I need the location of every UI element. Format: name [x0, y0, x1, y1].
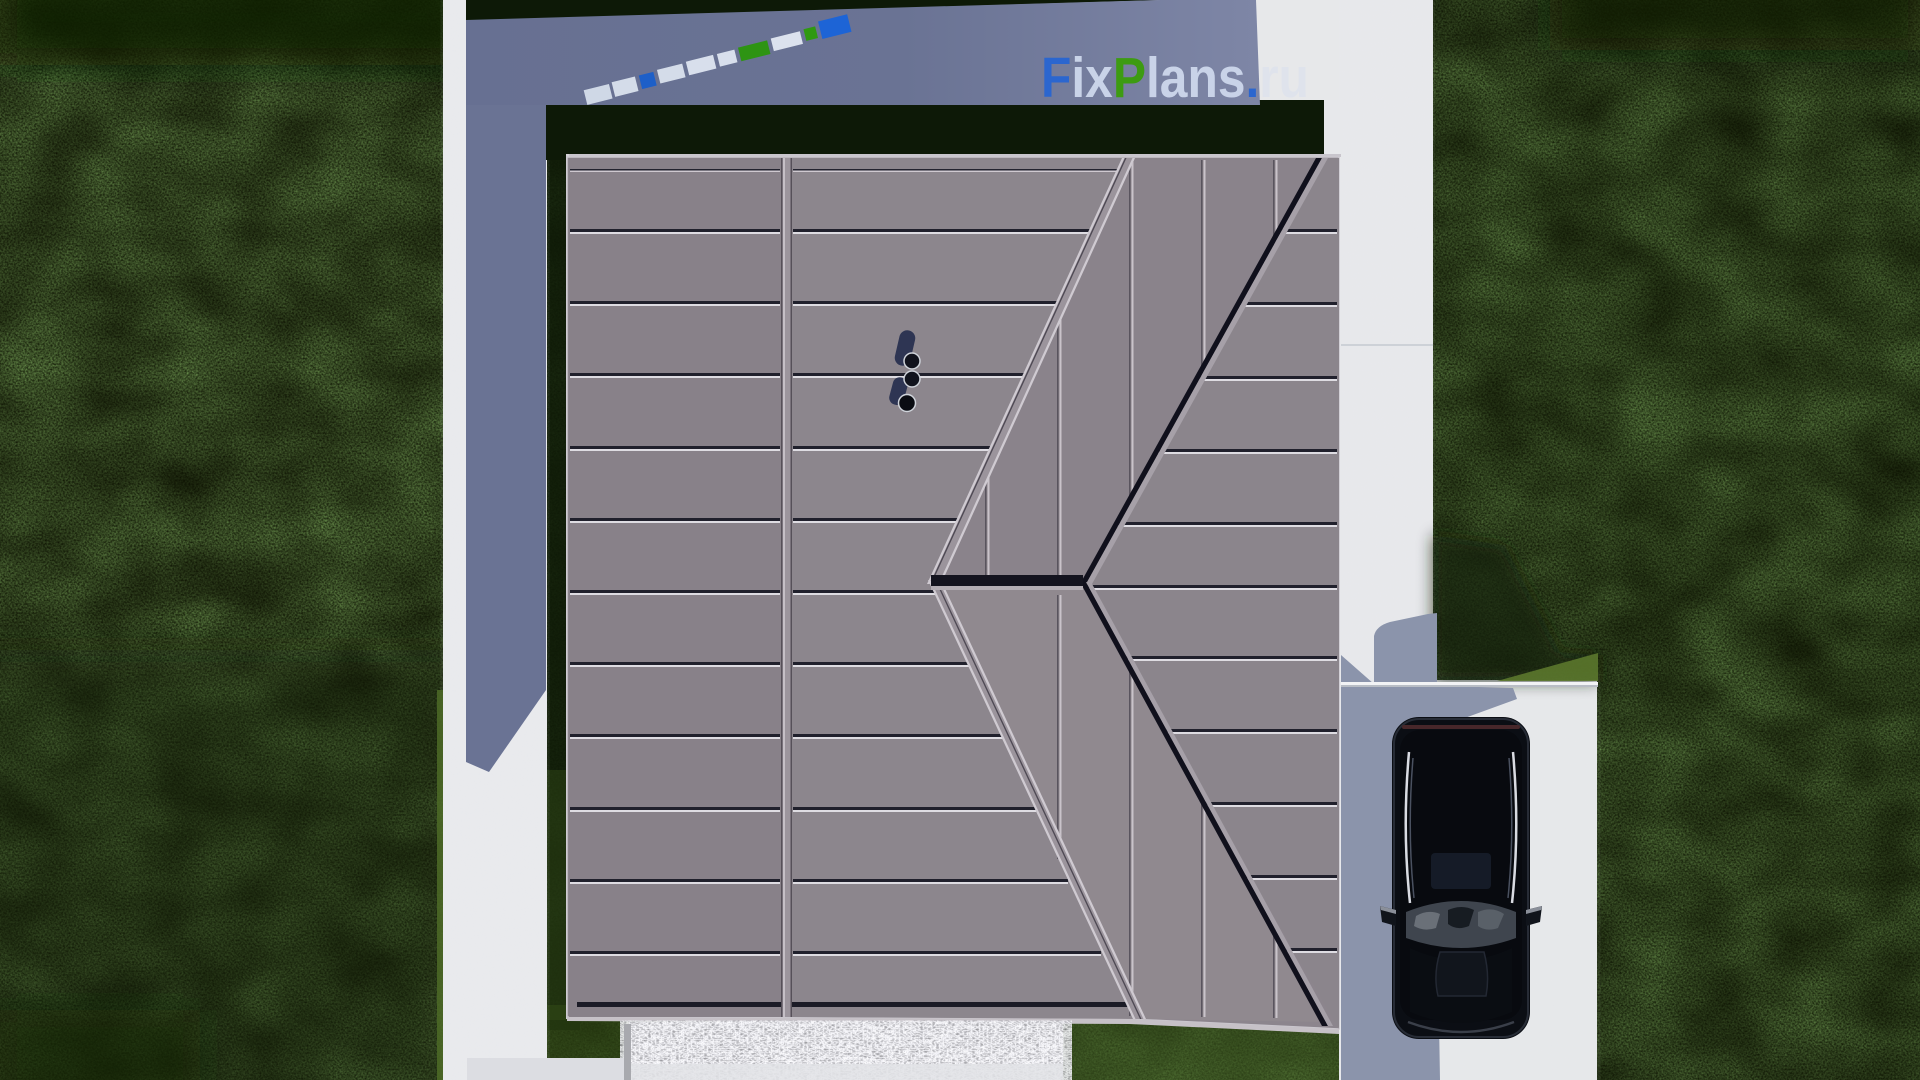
svg-text:FixPlans.ru: FixPlans.ru [1041, 46, 1309, 110]
